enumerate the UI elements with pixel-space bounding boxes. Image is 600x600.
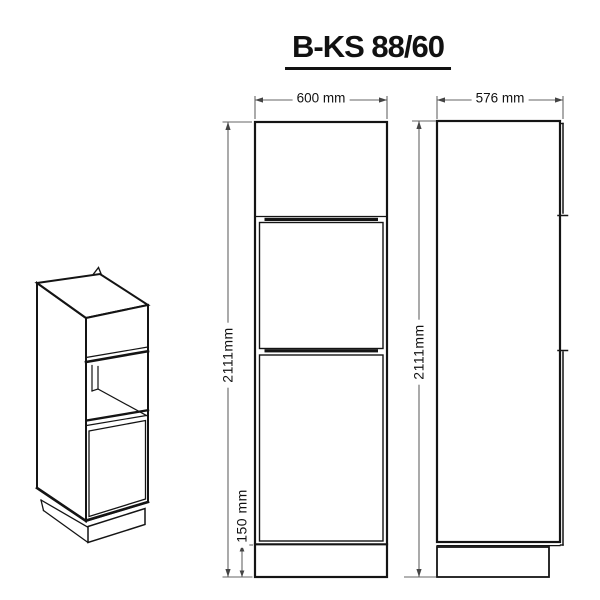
- side-view-drawing: [437, 121, 568, 577]
- side-cabinet-body: [437, 121, 560, 542]
- iso-side-panel: [37, 283, 86, 521]
- side-width-label: 576 mm: [472, 92, 529, 107]
- iso-front-face: [86, 305, 148, 521]
- front-door: [260, 355, 384, 541]
- front-niche-top-bar: [265, 218, 379, 221]
- front-plinth-label: 150 mm: [234, 484, 249, 548]
- side-height-label: 2111mm: [411, 319, 426, 384]
- technical-drawing-canvas: B-KS 88/60 600 mm 576 mm 2111mm 2111mm 1…: [0, 0, 600, 600]
- iso-view-drawing: [37, 268, 148, 543]
- front-niche-bottom-bar: [265, 349, 379, 352]
- front-oven-niche: [260, 223, 384, 349]
- drawing-title: B-KS 88/60: [285, 29, 451, 70]
- front-view-drawing: [255, 122, 387, 577]
- front-width-label: 600 mm: [293, 92, 350, 107]
- side-plinth: [437, 547, 549, 577]
- front-height-label: 2111mm: [220, 322, 235, 387]
